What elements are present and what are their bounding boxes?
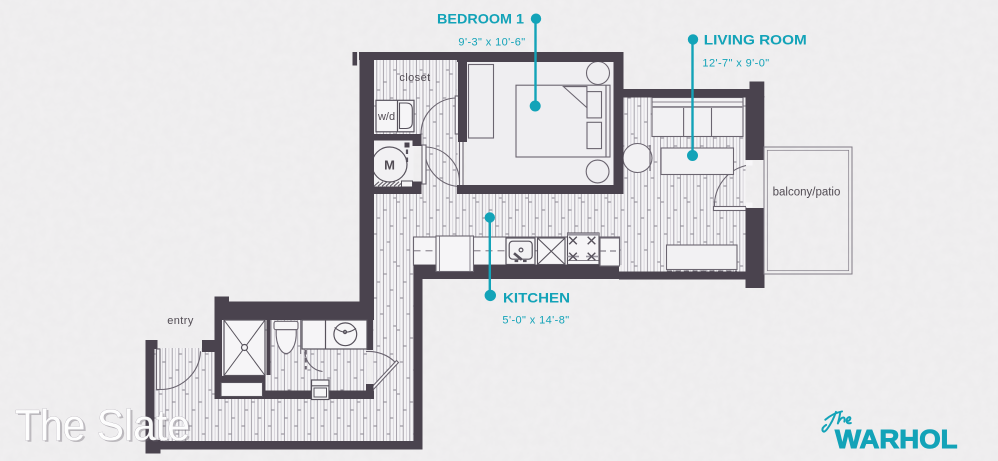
svg-text:LIVING ROOM: LIVING ROOM <box>704 32 807 48</box>
svg-text:9'-3" x 10'-6": 9'-3" x 10'-6" <box>458 37 525 49</box>
svg-text:closet: closet <box>399 72 430 84</box>
svg-text:KITCHEN: KITCHEN <box>503 290 570 306</box>
svg-text:balcony/patio: balcony/patio <box>773 187 841 199</box>
svg-text:5'-0" x 14'-8": 5'-0" x 14'-8" <box>502 315 569 327</box>
svg-text:entry: entry <box>167 315 194 327</box>
svg-text:BEDROOM 1: BEDROOM 1 <box>437 11 524 27</box>
svg-text:The Slate: The Slate <box>15 401 190 450</box>
svg-text:M: M <box>384 158 395 173</box>
svg-text:WARHOL: WARHOL <box>835 424 958 454</box>
svg-text:12'-7" x 9'-0": 12'-7" x 9'-0" <box>702 58 769 70</box>
svg-text:w/d: w/d <box>377 111 395 123</box>
